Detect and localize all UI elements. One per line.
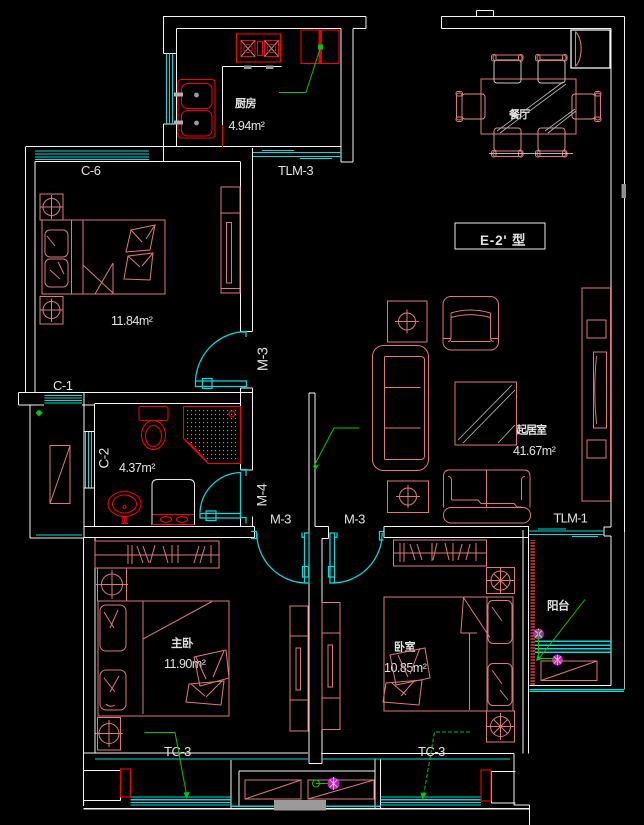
svg-text:M-3: M-3 <box>344 512 365 527</box>
svg-text:C-1: C-1 <box>53 378 73 393</box>
svg-text:M-4: M-4 <box>254 483 270 506</box>
svg-text:4.94m²: 4.94m² <box>229 119 265 133</box>
svg-text:41.67m²: 41.67m² <box>513 444 556 458</box>
svg-text:C-6: C-6 <box>81 163 101 178</box>
svg-text:M-3: M-3 <box>270 512 291 527</box>
svg-text:起居室: 起居室 <box>515 423 547 437</box>
svg-text:11.84m²: 11.84m² <box>111 314 153 328</box>
svg-text:E-2' 型: E-2' 型 <box>480 232 526 248</box>
svg-text:C-2: C-2 <box>97 448 112 468</box>
svg-text:阳台: 阳台 <box>547 599 569 613</box>
svg-text:4.37m²: 4.37m² <box>119 461 155 475</box>
svg-text:TLM-1: TLM-1 <box>554 511 588 526</box>
svg-text:TLM-3: TLM-3 <box>278 163 313 178</box>
svg-text:卧室: 卧室 <box>394 640 415 654</box>
svg-text:主卧: 主卧 <box>171 636 194 650</box>
svg-text:M-3: M-3 <box>256 347 272 371</box>
svg-text:厨房: 厨房 <box>235 96 256 110</box>
svg-text:10.85m²: 10.85m² <box>384 661 427 675</box>
